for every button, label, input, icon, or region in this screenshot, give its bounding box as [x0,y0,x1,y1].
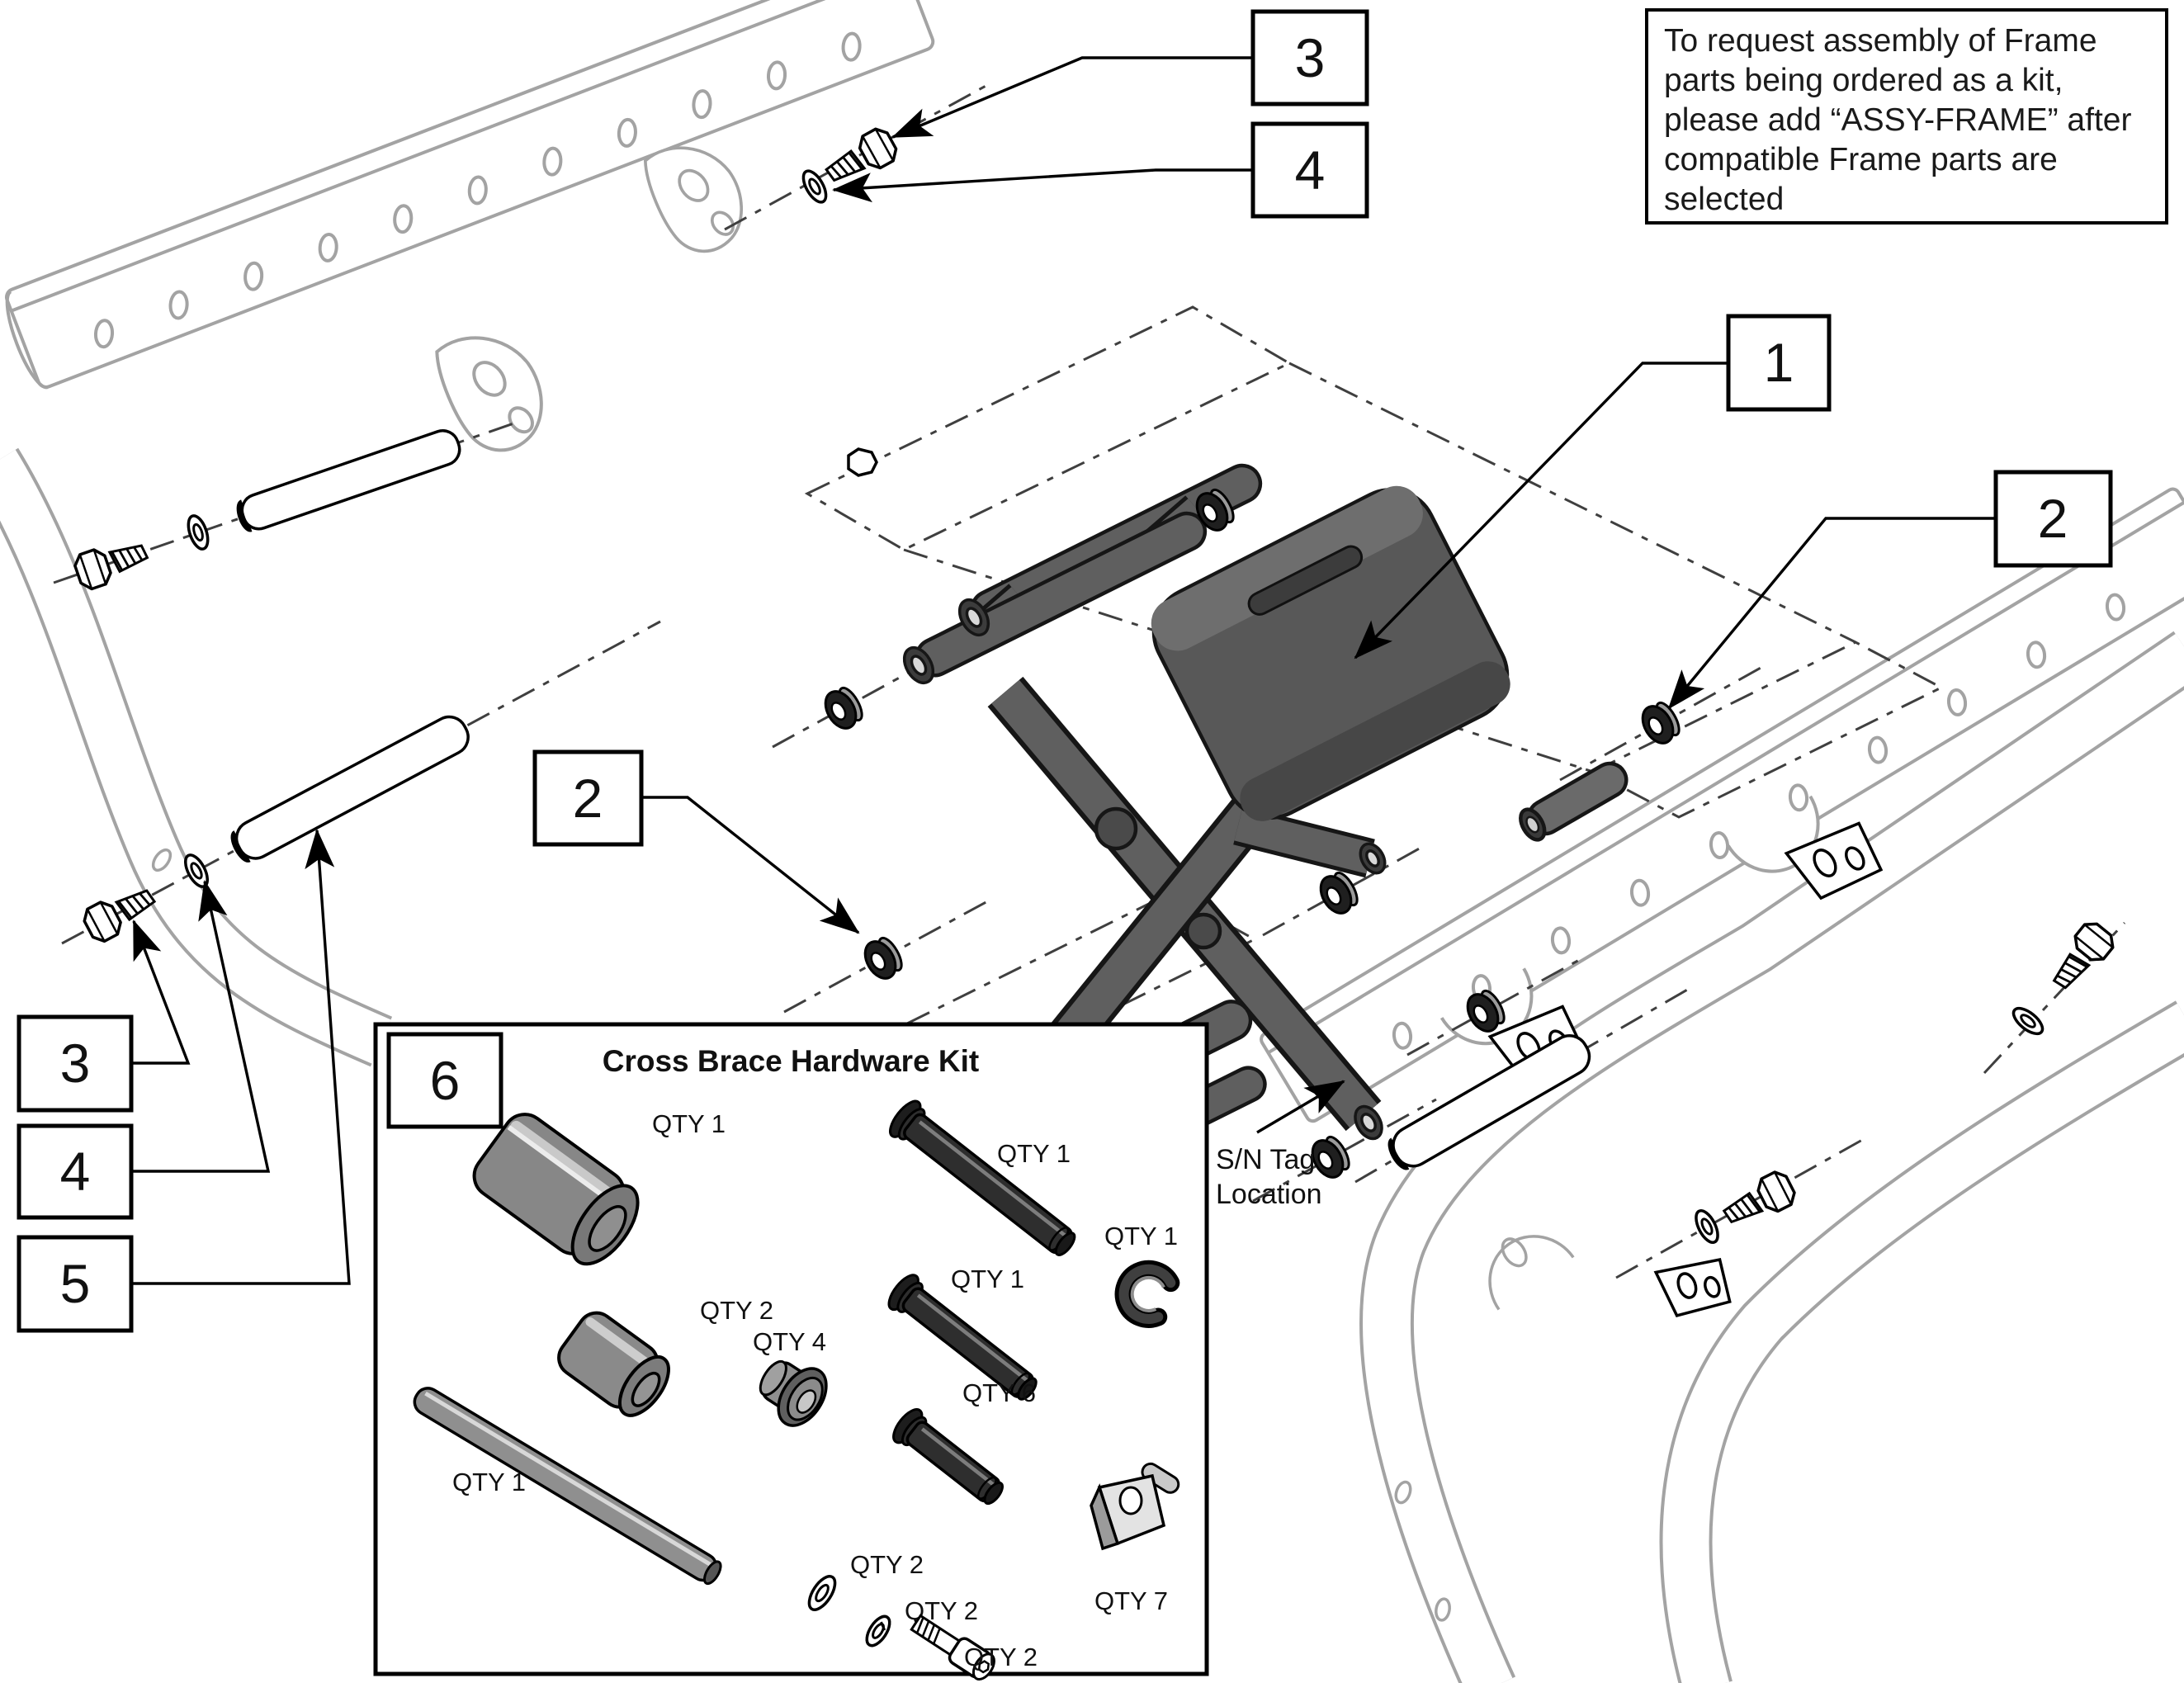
sn-tag-line2: Location [1216,1179,1322,1210]
frame-tube-right-curved-2 [1686,1024,2184,1683]
qty-label-e-clip: QTY 1 [1104,1222,1178,1250]
callout-box-left-3: 3 [19,1017,131,1110]
rail-bracket-left-2 [642,135,752,262]
pivot-disc-1 [1096,809,1136,849]
diagram-page: 3 4 1 2 2 3 4 5 S/N Tag Location To requ… [0,0,2184,1683]
washer-right-2 [2009,1004,2046,1038]
callout-box-right-1: 1 [1728,316,1829,409]
callout-box-top-3: 3 [1253,12,1367,104]
qty-label-medium-pin: QTY 1 [951,1265,1024,1293]
grommet-3 [859,934,907,984]
callout-number: 6 [430,1050,461,1111]
note-line: compatible Frame parts are [1664,142,2058,177]
seat-tube-lower-left [229,711,475,866]
callout-box-top-4: 4 [1253,124,1367,216]
callout-box-mid-2: 2 [535,752,641,844]
qty-label-retainer-clip: QTY 7 [1094,1586,1168,1615]
frame-rail-left [0,0,935,1042]
callout-number: 5 [60,1253,91,1314]
pivot-disc-2 [1187,915,1220,948]
rail-bracket-plate-3 [1656,1250,1734,1322]
hex-bolt-right-1 [1718,1169,1799,1233]
kit-title: Cross Brace Hardware Kit [603,1044,980,1078]
note-line: please add “ASSY-FRAME” after [1664,102,2131,138]
callout-number: 4 [1295,139,1326,201]
seat-tube-upper-left [235,427,464,534]
hex-bolt-top [820,125,901,191]
grommet-4 [1315,868,1363,919]
callout-box-left-5: 5 [19,1237,131,1331]
note-line: selected [1664,182,1784,217]
callout-number: 3 [60,1033,91,1094]
qty-label-socket-screw: QTY 2 [964,1643,1038,1671]
hex-bolt-right-2 [2045,918,2118,996]
qty-label-long-pin: QTY 1 [997,1139,1071,1168]
qty-label-cross-tube: QTY 1 [452,1468,526,1496]
callout-number: 1 [1764,332,1794,393]
leader-top-4 [834,170,1253,190]
callout-box-left-4: 4 [19,1126,131,1217]
callout-number: 2 [573,768,603,829]
sn-tag-line1: S/N Tag [1216,1144,1315,1175]
sn-tag-label: S/N Tag Location [1216,1144,1322,1210]
callout-box-kit-6: 6 [389,1034,501,1127]
leader-mid-2 [641,797,858,933]
callout-box-right-2: 2 [1996,472,2111,565]
qty-label-large-spacer: QTY 1 [652,1109,726,1138]
tube-arch-bracket [1468,1214,1573,1310]
leader-top-3 [893,58,1253,137]
washer-upper-left [185,513,212,551]
hardware-kit-box: Cross Brace Hardware Kit 6 QTY 1 QTY 1 [376,1024,1207,1683]
cross-brace-exploded-diagram: 3 4 1 2 2 3 4 5 S/N Tag Location To requ… [0,0,2184,1683]
washer-right-1 [1692,1208,1723,1246]
qty-label-medium-spacer: QTY 2 [700,1296,773,1325]
grommet-2 [820,683,867,734]
callout-number: 2 [2038,488,2068,549]
qty-label-bushing: QTY 4 [753,1327,826,1356]
hex-nut-small [849,449,877,475]
note-box: To request assembly of Frame parts being… [1647,10,2167,223]
qty-label-small-pin: QTY 6 [962,1378,1036,1407]
note-line: parts being ordered as a kit, [1664,63,2063,98]
frame-tube-left-curved [0,462,381,1042]
callout-number: 4 [60,1141,91,1202]
qty-label-flat-washer: QTY 2 [850,1550,924,1579]
grommet-5 [1637,698,1685,749]
callout-number: 3 [1295,27,1326,88]
note-line: To request assembly of Frame [1664,23,2097,59]
